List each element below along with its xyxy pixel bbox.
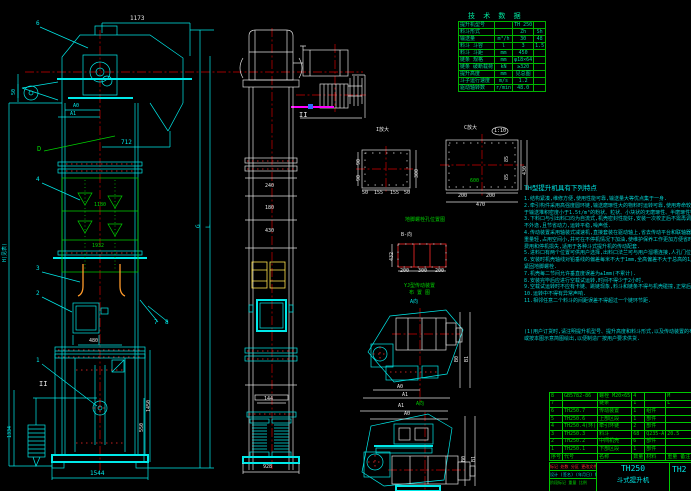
tech-row-unit: kN — [495, 64, 513, 71]
notes-line: 重量轻,占用空间小,并可在不停机情况下加油,使维护保养工作更加方便省时,易损件少… — [524, 237, 691, 244]
part-no: 2 — [550, 438, 563, 446]
dim-dc-200a: 200 — [458, 194, 467, 199]
part-code — [563, 400, 598, 408]
label-anchor-bolt-title: 地脚螺栓孔位置图 — [405, 218, 445, 223]
part-note — [666, 446, 691, 454]
tech-row-value-2: 48 — [534, 36, 546, 43]
cad-drawing-canvas: 1173650A0A1712D411801932H(见表)GL32781II48… — [0, 0, 691, 491]
title-block-name-cell: TH250 斗式提升机 — [597, 463, 670, 491]
parts-list-table: 8 GB5782-86 螺栓 M20×65 4 M 7 链条 1 L 6 TH2… — [549, 392, 691, 461]
tech-table-row: 链条 规格 mm φ18×64 — [459, 57, 546, 64]
tech-row-value-1: Zh — [513, 29, 534, 36]
dim-v1-a1: A1 — [402, 393, 408, 398]
part-no: 4 — [550, 423, 563, 431]
dim-b-200b: 200 — [435, 269, 444, 274]
callout-3: 3 — [36, 266, 40, 272]
callout-4: 4 — [36, 177, 40, 183]
dim-b-432: 432 — [390, 252, 395, 261]
part-name: 传动装置 — [598, 408, 632, 416]
part-name: 中间机壳 — [598, 438, 632, 446]
callout-1: 1 — [36, 358, 40, 364]
tech-table-row: 料斗形式 Zh Sh — [459, 29, 546, 36]
dim-1334: 1334 — [8, 426, 13, 438]
part-no: 3 — [550, 430, 563, 438]
part-note — [666, 415, 691, 423]
tech-row-label: 料斗 斗容 — [459, 43, 495, 50]
part-qty: 1 — [632, 400, 645, 408]
title-block-right-cell: TH2 — [670, 463, 691, 491]
tech-row-unit: mm — [495, 57, 513, 64]
notes-line: 1.结构紧凑,维修方便,使用性能可靠,输送量大等优点集于一身. — [524, 196, 691, 203]
tech-row-value-1: 48.0 — [513, 85, 534, 92]
anchor-bolt-grid — [392, 244, 446, 271]
tech-row-value-1: 3 — [513, 43, 534, 50]
dim-dc-85a: 85 — [505, 156, 510, 162]
tech-table-row: 斗子运行速度 m/s 1.2 — [459, 78, 546, 85]
drive-arrangement-view-2 — [360, 411, 475, 491]
part-code: TH250.7 — [563, 408, 598, 416]
螺栓 M20×65: 8 GB5782-86 螺栓 M20×65 4 M — [550, 393, 691, 401]
tech-row-value-1: 450 — [513, 50, 534, 57]
tech-row-unit — [495, 22, 513, 29]
part-qty: 68 — [632, 430, 645, 438]
part-name: 螺栓 M20×65 — [598, 393, 632, 401]
dim-v2-b1: B1 — [472, 456, 477, 462]
label-drive-title-2: 布 置 图 — [409, 291, 430, 296]
tech-row-value-2: 1.5 — [534, 43, 546, 50]
tech-row-label: 驱动轴转数 — [459, 85, 495, 92]
product-code: TH250 — [597, 463, 669, 475]
dim-480: 480 — [89, 339, 98, 344]
label-detail-C-scale: 1:10 — [494, 129, 506, 134]
dim-g: G — [196, 224, 202, 228]
parts-header-code: 代号 — [563, 453, 598, 461]
side-elevation-view — [240, 30, 365, 474]
dim-total-height: H(见表) — [3, 243, 8, 262]
dim-di-b1: 50 — [362, 191, 368, 196]
dim-di-b2: 155 — [374, 191, 383, 196]
dim-v1-b0: B0 — [455, 356, 460, 362]
part-qty: 1 — [632, 415, 645, 423]
part-no: 6 — [550, 408, 563, 416]
tech-row-value-1: 1.2 — [513, 78, 534, 85]
dim-di-300: 300 — [415, 169, 420, 178]
tech-row-label: 料斗 斗距 — [459, 50, 495, 57]
tech-row-value-1: TH 250 — [513, 22, 534, 29]
part-code: TH250.1 — [563, 446, 598, 454]
tech-row-label: 料斗形式 — [459, 29, 495, 36]
part-qty: 1 — [632, 408, 645, 416]
notes-title: TH型提升机具有下列特点 — [524, 182, 691, 192]
part-note: L — [666, 400, 691, 408]
part-material: 部件 — [645, 423, 666, 431]
tech-data-table: 提升机型号 TH 250 料斗形式 Zh Sh 输送量 m³/h 30 48 料… — [458, 21, 546, 92]
tech-table-row: 输送量 m³/h 30 48 — [459, 36, 546, 43]
dim-top-width: 1173 — [130, 16, 144, 22]
tech-row-unit: mm — [495, 71, 513, 78]
tech-row-unit: l — [495, 43, 513, 50]
feature-notes: TH型提升机具有下列特点 1.结构紧凑,维修方便,使用性能可靠,输送量大等优点集… — [524, 182, 691, 342]
part-no: 5 — [550, 415, 563, 423]
notes-footer-line: 或按本图示意简图绘出,以便制造厂按用户要求供货. — [524, 336, 691, 343]
dim-v1-b1: B1 — [465, 356, 470, 362]
dim-928: 928 — [263, 465, 272, 470]
传动装置: 6 TH250.7 传动装置 1 组件 — [550, 408, 691, 416]
title-block: 标记 处数 分区 更改文件号 签字 日期 设计 (签名) (年月日) 标准化 阶… — [549, 462, 691, 491]
tech-row-value-2 — [534, 78, 546, 85]
tech-row-value-1: 见总图 — [513, 71, 534, 78]
notes-line: 2.牵引构件采用高强度圆环链,输送磨琢性大的物料时运转可靠,使用寿命较胶带式有显… — [524, 203, 691, 210]
notes-line: 4.传动装置采用轴装式减速机,直接套装在驱动轴上,省去传动平台和联轴器,安装维修… — [524, 230, 691, 237]
tech-table-title: 技 术 数 据 — [468, 11, 523, 21]
下部区段: 1 TH250.1 下部区段 1 部件 — [550, 446, 691, 454]
notes-line: 紧固地脚螺栓. — [524, 264, 691, 271]
tech-row-unit — [495, 29, 513, 36]
part-note: 20.5 — [666, 430, 691, 438]
tech-row-value-2 — [534, 71, 546, 78]
dim-144: 144 — [264, 397, 273, 402]
dim-1450: 1450 — [147, 400, 152, 412]
tech-row-value-2 — [534, 85, 546, 92]
part-name: 上部区段 — [598, 415, 632, 423]
dim-180: 180 — [265, 206, 274, 211]
dim-v2-a0: A0 — [404, 412, 410, 417]
dim-1544: 1544 — [90, 471, 104, 477]
dim-b-300: 300 — [418, 269, 427, 274]
dim-550: 550 — [140, 423, 145, 432]
part-material: 组件 — [645, 408, 666, 416]
上部区段: 5 TH250.6 上部区段 1 部件 — [550, 415, 691, 423]
part-material: 部件 — [645, 438, 666, 446]
label-b-view: B-向 — [401, 233, 412, 238]
callout-7: 7 — [154, 320, 158, 326]
tech-row-label: 提升高度 — [459, 71, 495, 78]
part-note — [666, 423, 691, 431]
dim-di-90b: 90 — [357, 175, 362, 181]
detail-I-flange — [358, 150, 416, 190]
part-code: TH250.2 — [563, 438, 598, 446]
dim-v2-a1: A1 — [398, 404, 404, 409]
parts-header-material: 材料 — [645, 453, 666, 461]
dim-712: 712 — [121, 140, 132, 146]
label-d-view: D — [37, 146, 41, 153]
parts-header-qty: 数量 — [632, 453, 645, 461]
tech-table-row: 料斗 斗距 mm 450 — [459, 50, 546, 57]
tech-row-unit: r/min — [495, 85, 513, 92]
tech-row-value-2 — [534, 64, 546, 71]
tech-table-row: 驱动轴转数 r/min 48.0 — [459, 85, 546, 92]
tech-row-value-2: Sh — [534, 29, 546, 36]
callout-2: 2 — [36, 291, 40, 297]
notes-line: 11.相邻任意二个料斗的间距误差不得超过一个链环节距. — [524, 298, 691, 305]
notes-line: 6.安装时机壳轴线对铅垂线的偏差每米不大于1mm,全高偏差不大于总高的1/100… — [524, 257, 691, 264]
tech-row-unit: m³/h — [495, 36, 513, 43]
牵引环链: 4 TH250.4(环) 牵引环链 2 部件 — [550, 423, 691, 431]
part-material: Q235-A — [645, 430, 666, 438]
dim-v2-b0: B0 — [462, 456, 467, 462]
callout-6: 6 — [36, 21, 40, 27]
stage-row: 阶段标记 重量 比例 — [550, 479, 596, 486]
tech-row-label: 输送量 — [459, 36, 495, 43]
dim-di-b4: 50 — [404, 191, 410, 196]
product-name: 斗式提升机 — [597, 475, 669, 485]
tech-row-value-1: ≥320 — [513, 64, 534, 71]
revision-row: 标记 处数 分区 更改文件号 签字 日期 — [550, 463, 596, 471]
dim-1932: 1932 — [92, 244, 104, 249]
料斗: 3 TH250.3 料斗 68 Q235-A 20.5 — [550, 430, 691, 438]
detail-C-flange — [446, 127, 527, 202]
front-elevation-view — [9, 23, 214, 480]
part-no: 7 — [550, 400, 563, 408]
dim-50: 50 — [12, 89, 17, 95]
part-material: 部件 — [645, 446, 666, 454]
dim-b-200a: 200 — [400, 269, 409, 274]
tech-row-unit: m/s — [495, 78, 513, 85]
signature-row: 设计 (签名) (年月日) 标准化 — [550, 471, 596, 479]
tech-row-value-2 — [534, 57, 546, 64]
drive-arrangement-view-1 — [363, 310, 470, 398]
tech-table-row: 提升高度 mm 见总图 — [459, 71, 546, 78]
dim-dc-600: 600 — [470, 179, 479, 184]
callout-8: 8 — [165, 320, 169, 326]
part-name: 下部区段 — [598, 446, 632, 454]
tech-table-row: 料斗 斗容 l 3 1.5 — [459, 43, 546, 50]
parts-header-row: 序号 代号 名称 数量 材料 重量 备注 — [550, 453, 691, 461]
label-detail-I: I放大 — [376, 128, 389, 133]
part-name: 牵引环链 — [598, 423, 632, 431]
中间机壳: 2 TH250.2 中间机壳 6 部件 — [550, 438, 691, 446]
part-qty: 2 — [632, 423, 645, 431]
dim-dc-200b: 200 — [486, 194, 495, 199]
label-detail-C: C放大 — [464, 126, 477, 131]
tech-row-label: 斗子运行速度 — [459, 78, 495, 85]
notes-gap — [524, 305, 691, 329]
dim-l: L — [206, 224, 212, 228]
链条: 7 链条 1 L — [550, 400, 691, 408]
part-note — [666, 438, 691, 446]
notes-line: 10.运转中不得有异常声响. — [524, 291, 691, 298]
part-code: TH250.6 — [563, 415, 598, 423]
label-a0-left: A0 — [73, 104, 79, 109]
dim-1180: 1180 — [94, 203, 106, 208]
tech-row-label: 提升机型号 — [459, 22, 495, 29]
part-qty: 1 — [632, 446, 645, 454]
part-name: 链条 — [598, 400, 632, 408]
parts-header-name: 名称 — [598, 453, 632, 461]
tech-table-row: 链条 破断载荷 kN ≥320 — [459, 64, 546, 71]
part-material: 部件 — [645, 415, 666, 423]
label-a-view: A向 — [410, 300, 418, 305]
part-material — [645, 400, 666, 408]
tech-row-value-2 — [534, 22, 546, 29]
notes-line: 不外逸,且节省动力,运转平稳,噪声低. — [524, 223, 691, 230]
part-name: 料斗 — [598, 430, 632, 438]
dim-dc-85b: 85 — [505, 174, 510, 180]
dim-v1-a0: A0 — [397, 385, 403, 390]
part-note — [666, 408, 691, 416]
dim-dc-430: 430 — [523, 166, 528, 175]
section-mark-II-left: II — [39, 381, 47, 388]
tech-row-unit: mm — [495, 50, 513, 57]
tech-row-value-1: 30 — [513, 36, 534, 43]
label-a-view-2: A向 — [416, 402, 424, 407]
dim-di-90a: 90 — [357, 159, 362, 165]
part-no: 1 — [550, 446, 563, 454]
notes-footer-line: (1)用户订货时,请注明提升机型号、提升高度和料斗形式,以及传动装置的布置位置(… — [524, 329, 691, 336]
section-mark-II-mid: II — [299, 112, 307, 119]
tech-row-value-1: φ18×64 — [513, 57, 534, 64]
part-qty: 6 — [632, 438, 645, 446]
tech-row-value-2 — [534, 50, 546, 57]
part-material — [645, 393, 666, 401]
part-no: 8 — [550, 393, 563, 401]
tech-row-label: 链条 破断载荷 — [459, 64, 495, 71]
dim-430: 430 — [265, 229, 274, 234]
title-block-revision-area: 标记 处数 分区 更改文件号 签字 日期 设计 (签名) (年月日) 标准化 阶… — [550, 463, 597, 491]
tech-row-label: 链条 规格 — [459, 57, 495, 64]
dim-240: 240 — [265, 184, 274, 189]
label-drive-title-1: YJ型传动装置 — [404, 284, 435, 289]
tech-table-row: 提升机型号 TH 250 — [459, 22, 546, 29]
part-note: M — [666, 393, 691, 401]
label-a1-left: A1 — [70, 112, 76, 117]
part-code: GB5782-86 — [563, 393, 598, 401]
parts-header-note: 重量 备注 — [666, 453, 691, 461]
parts-header-no: 序号 — [550, 453, 563, 461]
part-code: TH250.3 — [563, 430, 598, 438]
part-code: TH250.4(环) — [563, 423, 598, 431]
notes-line: 7.机壳每二节间允许垂直度误差为±1mm(不累计). — [524, 271, 691, 278]
part-qty: 4 — [632, 393, 645, 401]
dim-dc-470: 470 — [476, 203, 485, 208]
dim-di-b3: 155 — [390, 191, 399, 196]
